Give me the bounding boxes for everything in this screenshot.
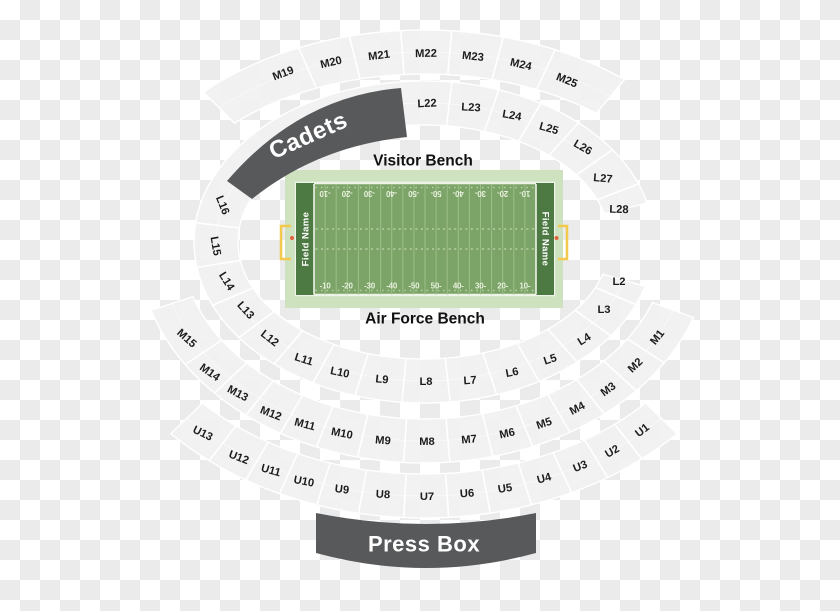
section-label-l9[interactable]: L9 xyxy=(375,373,389,386)
yard-number-bottom: 30- xyxy=(475,281,486,290)
yard-number-bottom: 20- xyxy=(497,281,508,290)
yard-number-bottom: -50 xyxy=(408,281,420,290)
yard-number-top: -50 xyxy=(408,189,420,198)
section-label-u9[interactable]: U9 xyxy=(334,483,350,497)
press-box-label[interactable]: Press Box xyxy=(368,532,480,557)
yard-number-top: 10- xyxy=(519,189,530,198)
section-label-l23[interactable]: L23 xyxy=(461,101,481,114)
section-label-u6[interactable]: U6 xyxy=(460,487,475,500)
air-force-bench-label: Air Force Bench xyxy=(365,310,485,327)
stadium-seat-map: L2L3L4L5L6L7L8L9L10L11L12L13L14L15L16L22… xyxy=(0,0,840,611)
section-label-l3[interactable]: L3 xyxy=(597,304,610,316)
section-label-u5[interactable]: U5 xyxy=(497,482,513,496)
goalpost-right-marker xyxy=(555,236,559,240)
yard-number-top: 50- xyxy=(430,189,441,198)
football-field: -10-10-20-20-30-30-40-40-50-5050-50-40-4… xyxy=(281,170,567,308)
section-label-u7[interactable]: U7 xyxy=(420,491,434,503)
yard-number-top: -30 xyxy=(363,189,375,198)
yard-number-bottom: 10- xyxy=(519,281,530,290)
section-label-l7[interactable]: L7 xyxy=(463,374,477,387)
section-label-l22[interactable]: L22 xyxy=(417,97,437,110)
yard-number-bottom: -40 xyxy=(386,281,398,290)
yard-number-bottom: -30 xyxy=(364,281,376,290)
goalpost-left-marker xyxy=(290,236,294,240)
yard-number-bottom: -20 xyxy=(342,281,354,290)
yard-number-bottom: 40- xyxy=(453,281,464,290)
section-label-m23[interactable]: M23 xyxy=(461,50,484,64)
section-label-l27[interactable]: L27 xyxy=(593,172,613,186)
section-label-m8[interactable]: M8 xyxy=(419,436,435,448)
yard-number-top: -20 xyxy=(341,189,353,198)
section-label-m22[interactable]: M22 xyxy=(415,48,437,60)
yard-number-top: 20- xyxy=(497,189,508,198)
yard-number-bottom: -10 xyxy=(320,281,332,290)
visitor-bench-label: Visitor Bench xyxy=(373,153,473,170)
yard-number-top: -10 xyxy=(319,189,331,198)
section-label-l2[interactable]: L2 xyxy=(612,276,625,288)
yard-lines xyxy=(314,184,536,295)
section-label-l6[interactable]: L6 xyxy=(505,366,520,380)
yard-number-top: 40- xyxy=(452,189,463,198)
section-label-m7[interactable]: M7 xyxy=(461,433,478,446)
yard-number-top: -40 xyxy=(385,189,397,198)
section-label-m9[interactable]: M9 xyxy=(375,434,392,447)
section-label-u8[interactable]: U8 xyxy=(375,489,390,502)
yard-number-top: 30- xyxy=(474,189,485,198)
field-name-right: Field Name xyxy=(540,212,551,267)
field-name-left: Field Name xyxy=(300,212,311,267)
section-label-l8[interactable]: L8 xyxy=(419,376,432,388)
seat-map-canvas: L2L3L4L5L6L7L8L9L10L11L12L13L14L15L16L22… xyxy=(0,0,840,611)
yard-number-bottom: 50- xyxy=(431,281,442,290)
section-label-l28[interactable]: L28 xyxy=(609,204,629,217)
